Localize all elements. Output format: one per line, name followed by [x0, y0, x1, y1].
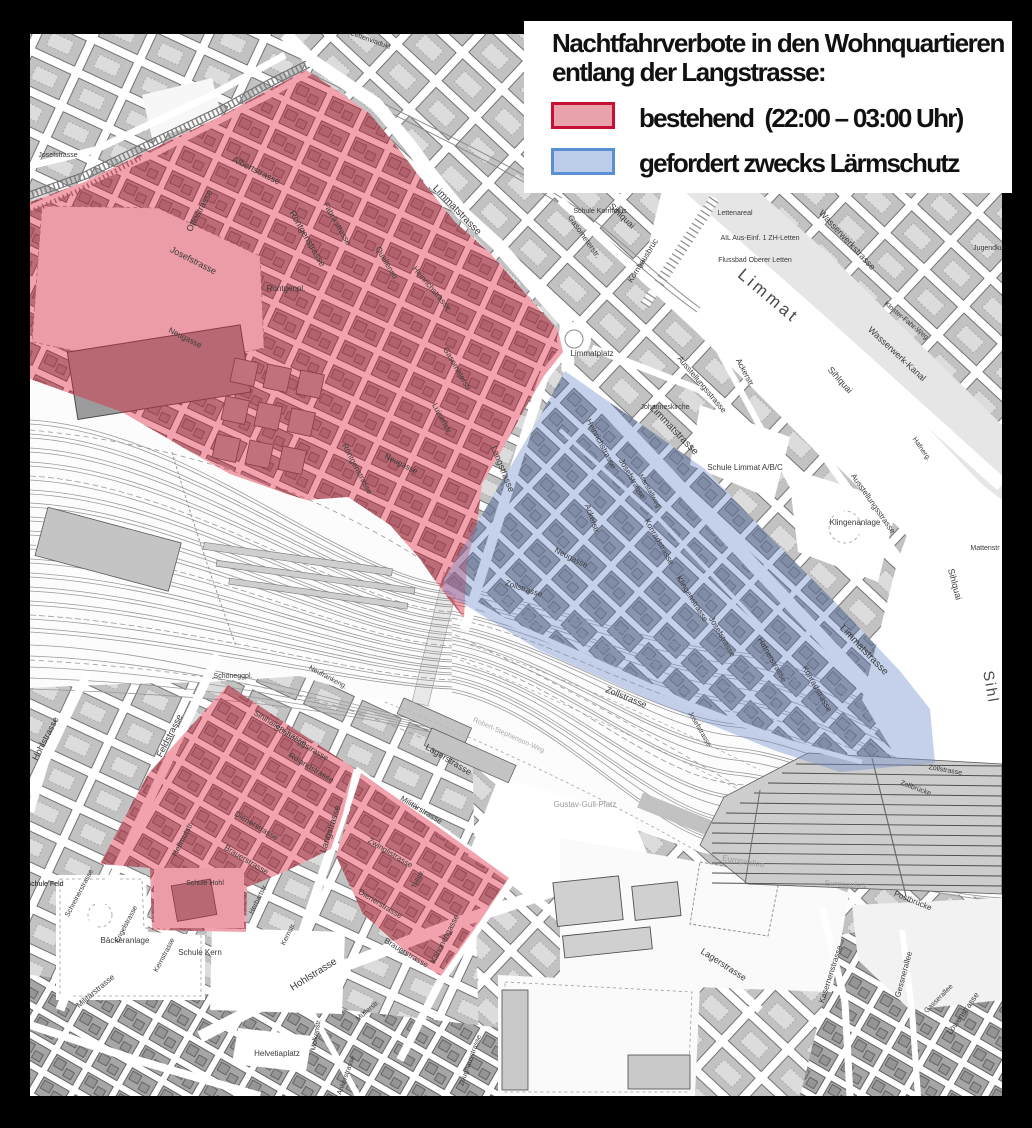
svg-text:Jugendkult: Jugendkult: [973, 245, 1007, 252]
svg-text:Schule Feld: Schule Feld: [27, 881, 64, 888]
svg-text:Klingenanlage: Klingenanlage: [830, 518, 881, 527]
svg-text:Flussbad Oberer Letten: Flussbad Oberer Letten: [718, 257, 792, 264]
svg-text:Schöneggpl.: Schöneggpl.: [214, 673, 253, 680]
svg-text:bestehend (22:00 – 03:00 Uhr): bestehend (22:00 – 03:00 Uhr): [639, 103, 964, 133]
svg-text:Nachtfahrverbote in den Wohnqu: Nachtfahrverbote in den Wohnquartieren: [552, 28, 1004, 58]
svg-text:Schule Kern: Schule Kern: [178, 948, 222, 957]
svg-text:Johanneskirche: Johanneskirche: [640, 404, 689, 411]
svg-text:Schule Limmat A/B/C: Schule Limmat A/B/C: [707, 463, 783, 472]
svg-text:Mattenstr: Mattenstr: [970, 545, 1000, 552]
svg-text:Josefstrasse: Josefstrasse: [38, 152, 77, 159]
svg-text:Röntgenpl.: Röntgenpl.: [267, 284, 306, 293]
svg-text:Schule Hohl: Schule Hohl: [186, 880, 224, 887]
svg-text:gefordert zwecks Lärmschutz: gefordert zwecks Lärmschutz: [639, 148, 960, 178]
svg-text:Lettenareal: Lettenareal: [717, 210, 752, 217]
svg-text:Limmatplatz: Limmatplatz: [570, 349, 613, 358]
svg-text:Bäckeranlage: Bäckeranlage: [101, 936, 150, 945]
svg-text:AIL Aus-Einf. 1 ZH-Letten: AIL Aus-Einf. 1 ZH-Letten: [720, 235, 799, 242]
svg-text:Helvetiaplatz: Helvetiaplatz: [254, 1049, 300, 1058]
svg-text:entlang der Langstrasse:: entlang der Langstrasse:: [552, 57, 825, 87]
svg-text:Gustav-Gull-Platz: Gustav-Gull-Platz: [554, 800, 617, 809]
svg-text:Schule Kornhaus: Schule Kornhaus: [573, 208, 627, 215]
